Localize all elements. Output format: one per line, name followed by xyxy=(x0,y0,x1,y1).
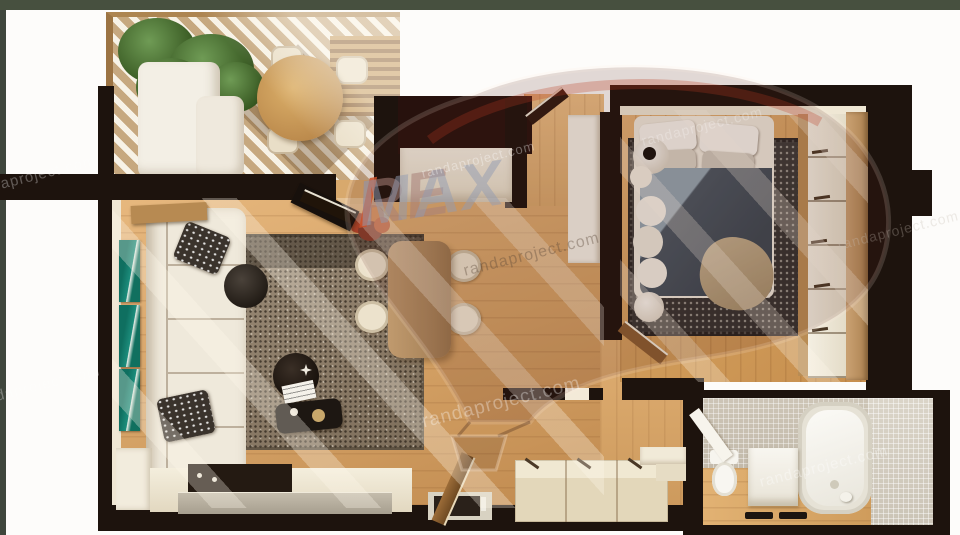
wall-bedroom-left xyxy=(600,112,622,340)
cooktop-knob xyxy=(212,477,217,482)
wall-bedroom-right xyxy=(866,85,912,395)
wall-right-step xyxy=(910,170,932,216)
teal-artwork-2 xyxy=(119,305,140,367)
round-nightstand-small xyxy=(630,166,652,188)
wardrobe-wood-panel xyxy=(846,112,868,380)
hall-step xyxy=(656,464,686,481)
bath-mat xyxy=(745,512,773,519)
bedroom-stool xyxy=(634,292,664,322)
bed-side-pillow xyxy=(637,258,667,288)
bathtub-faucet xyxy=(840,492,852,502)
terrace-round-table xyxy=(257,55,343,141)
terrace-chair xyxy=(334,120,366,148)
bathtub-drain xyxy=(830,480,839,489)
hall-step xyxy=(640,447,686,465)
dining-chair xyxy=(355,301,389,333)
entry-console xyxy=(400,148,512,202)
bath-mat xyxy=(779,512,807,519)
bathtub-inner xyxy=(806,410,864,506)
dining-chair xyxy=(447,303,481,335)
dining-table xyxy=(388,241,451,358)
wall-bathroom-bottom xyxy=(683,524,950,535)
terrace-chair xyxy=(336,56,368,84)
bed-side-pillow xyxy=(636,196,666,226)
hall-sideboard xyxy=(515,460,668,522)
wardrobe-wood-strip xyxy=(798,114,808,376)
sink-faucet xyxy=(481,497,486,511)
dining-chair xyxy=(447,250,481,282)
toilet xyxy=(712,462,737,496)
tray-cup xyxy=(290,408,298,416)
left-frame-strip xyxy=(0,10,6,535)
dining-chair xyxy=(355,249,389,281)
teal-artwork-3 xyxy=(119,369,140,431)
wall-terrace-right xyxy=(374,96,400,202)
terrace-sofa-seat xyxy=(196,96,244,178)
wall-balcony-divider xyxy=(0,174,336,200)
tray-plate xyxy=(312,409,325,422)
site-watermark: randaproject.com xyxy=(0,362,102,410)
teal-artwork-1 xyxy=(119,240,140,302)
cooktop xyxy=(188,464,292,492)
round-side-table xyxy=(224,264,268,308)
entry-closet xyxy=(568,115,600,263)
bathroom-mosaic-right xyxy=(868,398,933,525)
floorplan-render: RE/MAX randaproject.com randaproject.com… xyxy=(0,0,960,535)
washing-machine xyxy=(748,448,798,506)
kitchen-end-cabinet xyxy=(116,448,152,510)
kitchen-steel-front xyxy=(178,492,392,514)
wall-bathroom-right xyxy=(930,390,950,535)
hall-door-frame xyxy=(565,388,589,400)
bed-side-pillow xyxy=(633,226,663,258)
top-frame-strip xyxy=(0,0,960,10)
cooktop-knob xyxy=(197,473,202,478)
